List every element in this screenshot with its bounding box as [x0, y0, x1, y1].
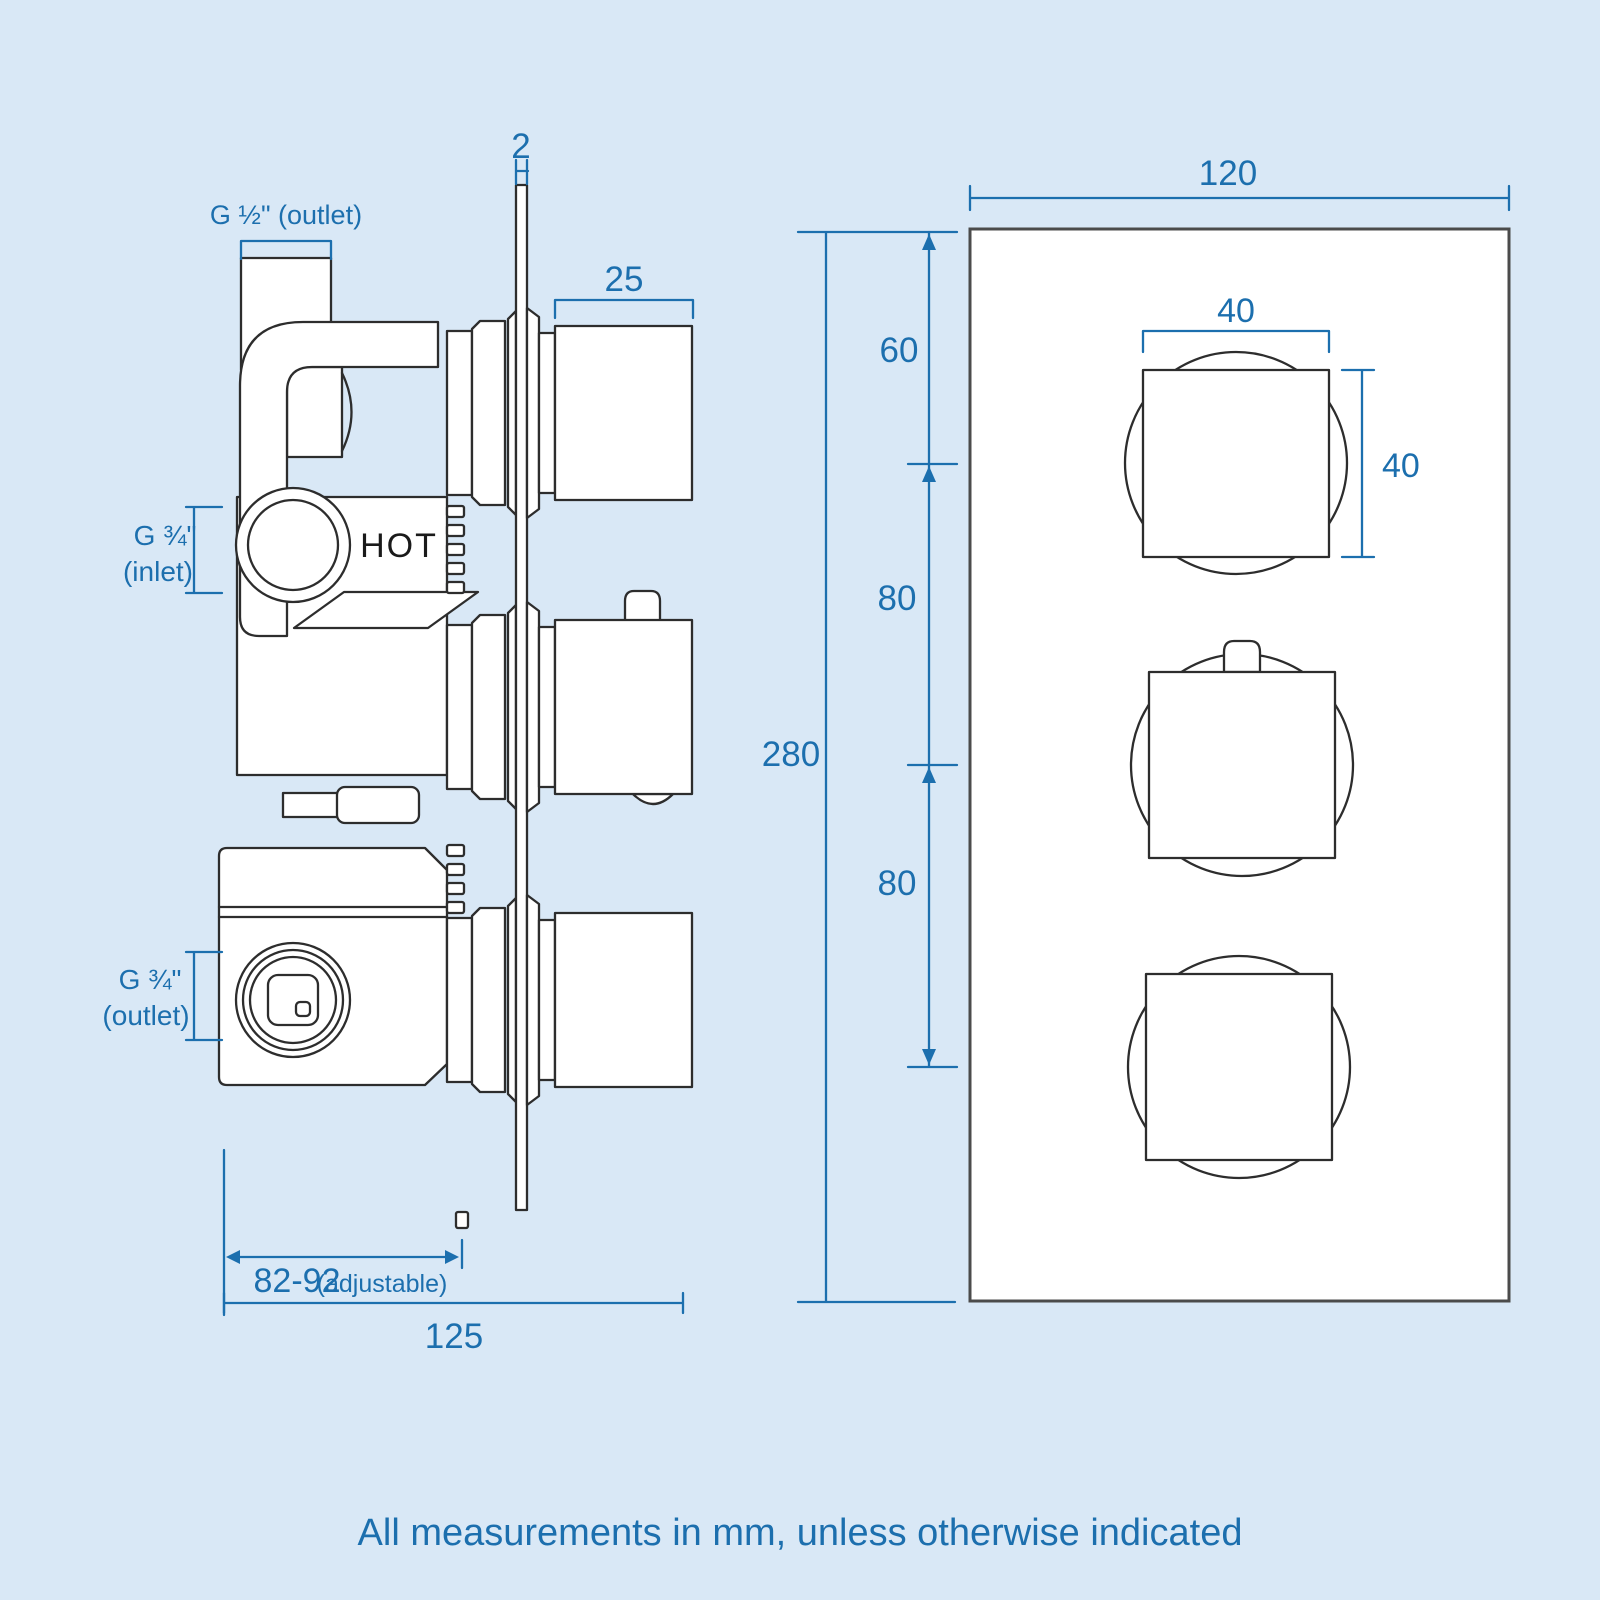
- svg-text:25: 25: [605, 260, 644, 299]
- dim-outlet-lower: G ¾" (outlet): [102, 952, 222, 1040]
- threaded-port-ribs-upper: [447, 506, 464, 593]
- side-view: HOT: [102, 127, 693, 1356]
- plate-clip-tip: [456, 1212, 468, 1228]
- cartridge-bottom: [447, 898, 516, 1102]
- dim-depth-adjustable: 82-92 (adjustable): [224, 1150, 462, 1315]
- svg-text:40: 40: [1382, 447, 1420, 485]
- knob-bottom-side: [555, 913, 692, 1087]
- outlet-port: [236, 943, 350, 1057]
- dim-plate-width: 120: [970, 154, 1509, 210]
- cartridge-middle: [447, 605, 516, 809]
- hot-label: HOT: [360, 527, 438, 565]
- svg-text:G ½" (outlet): G ½" (outlet): [210, 200, 362, 230]
- dim-depth-total: 125: [224, 1293, 683, 1356]
- threaded-port-ribs-lower: [447, 845, 464, 913]
- port-boss-cap: [342, 373, 352, 451]
- escutcheons-front: [527, 308, 539, 1105]
- dim-plate-thickness: 2: [511, 127, 530, 184]
- svg-text:G ¾": G ¾": [134, 520, 197, 551]
- cartridge-top: [447, 311, 516, 515]
- dim-knob-depth: 25: [555, 260, 693, 318]
- hot-inlet-port: [236, 488, 350, 602]
- svg-text:80: 80: [878, 579, 917, 618]
- spindles: [539, 333, 555, 1080]
- temp-limit-pin-side: [625, 591, 660, 622]
- dim-outlet-half: G ½" (outlet): [210, 200, 362, 259]
- front-view: 120 280 60 80 80 40 40: [762, 154, 1509, 1302]
- connector-neck: [283, 793, 339, 817]
- svg-text:(inlet): (inlet): [123, 556, 193, 587]
- svg-text:280: 280: [762, 735, 820, 774]
- knob-lip: [633, 794, 673, 804]
- knob-top-side: [555, 326, 692, 500]
- connector-block: [337, 787, 419, 823]
- knob-middle-side: [555, 620, 692, 794]
- svg-text:125: 125: [425, 1317, 483, 1356]
- svg-text:80: 80: [878, 864, 917, 903]
- valve-technical-drawing: HOT: [0, 0, 1600, 1600]
- svg-text:60: 60: [880, 331, 919, 370]
- svg-text:120: 120: [1199, 154, 1257, 193]
- measurement-note: All measurements in mm, unless otherwise…: [358, 1512, 1243, 1554]
- dim-knob-offsets: 60 80 80: [878, 232, 957, 1067]
- port-boss: [287, 367, 342, 457]
- wall-plate-edge: [516, 185, 527, 1210]
- temp-limit-pin-front: [1224, 641, 1260, 672]
- svg-text:(adjustable): (adjustable): [317, 1270, 448, 1298]
- dim-inlet: G ¾" (inlet): [123, 507, 222, 593]
- svg-text:G ¾": G ¾": [119, 964, 182, 995]
- knob-middle-square: [1149, 672, 1335, 858]
- dim-plate-height: 280: [762, 232, 957, 1302]
- svg-text:40: 40: [1217, 292, 1255, 330]
- svg-text:(outlet): (outlet): [102, 1000, 189, 1031]
- knob-top-square: [1143, 370, 1329, 557]
- knob-bottom-square: [1146, 974, 1332, 1160]
